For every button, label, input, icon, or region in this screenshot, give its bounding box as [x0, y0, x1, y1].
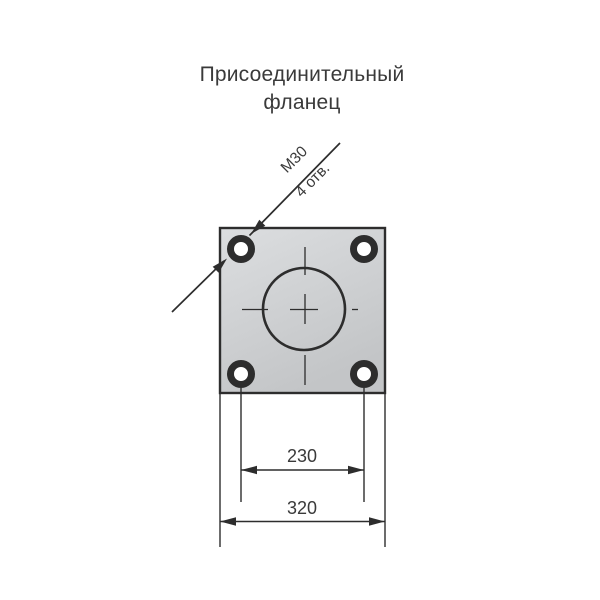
arrowhead-320-right — [369, 517, 385, 525]
drawing-page: Присоединительный фланец — [0, 0, 600, 600]
bolt-hole-top-right — [354, 239, 375, 260]
arrowhead-230-left — [241, 466, 257, 474]
callout-thread-label: M30 — [278, 143, 312, 177]
bolt-hole-bottom-right — [354, 364, 375, 385]
arrowhead-320-left — [220, 517, 236, 525]
bolt-hole-bottom-left — [231, 364, 252, 385]
page-title: Присоединительный фланец — [200, 63, 405, 114]
extension-lines — [220, 388, 385, 547]
dimension-label-230: 230 — [287, 446, 317, 466]
arrowhead-230-right — [348, 466, 364, 474]
bolt-hole-top-left — [231, 239, 252, 260]
flange-technical-drawing: Присоединительный фланец — [0, 0, 600, 600]
dimension-label-320: 320 — [287, 498, 317, 518]
page-title-line1: Присоединительный — [200, 63, 405, 86]
page-title-line2: фланец — [263, 91, 340, 114]
